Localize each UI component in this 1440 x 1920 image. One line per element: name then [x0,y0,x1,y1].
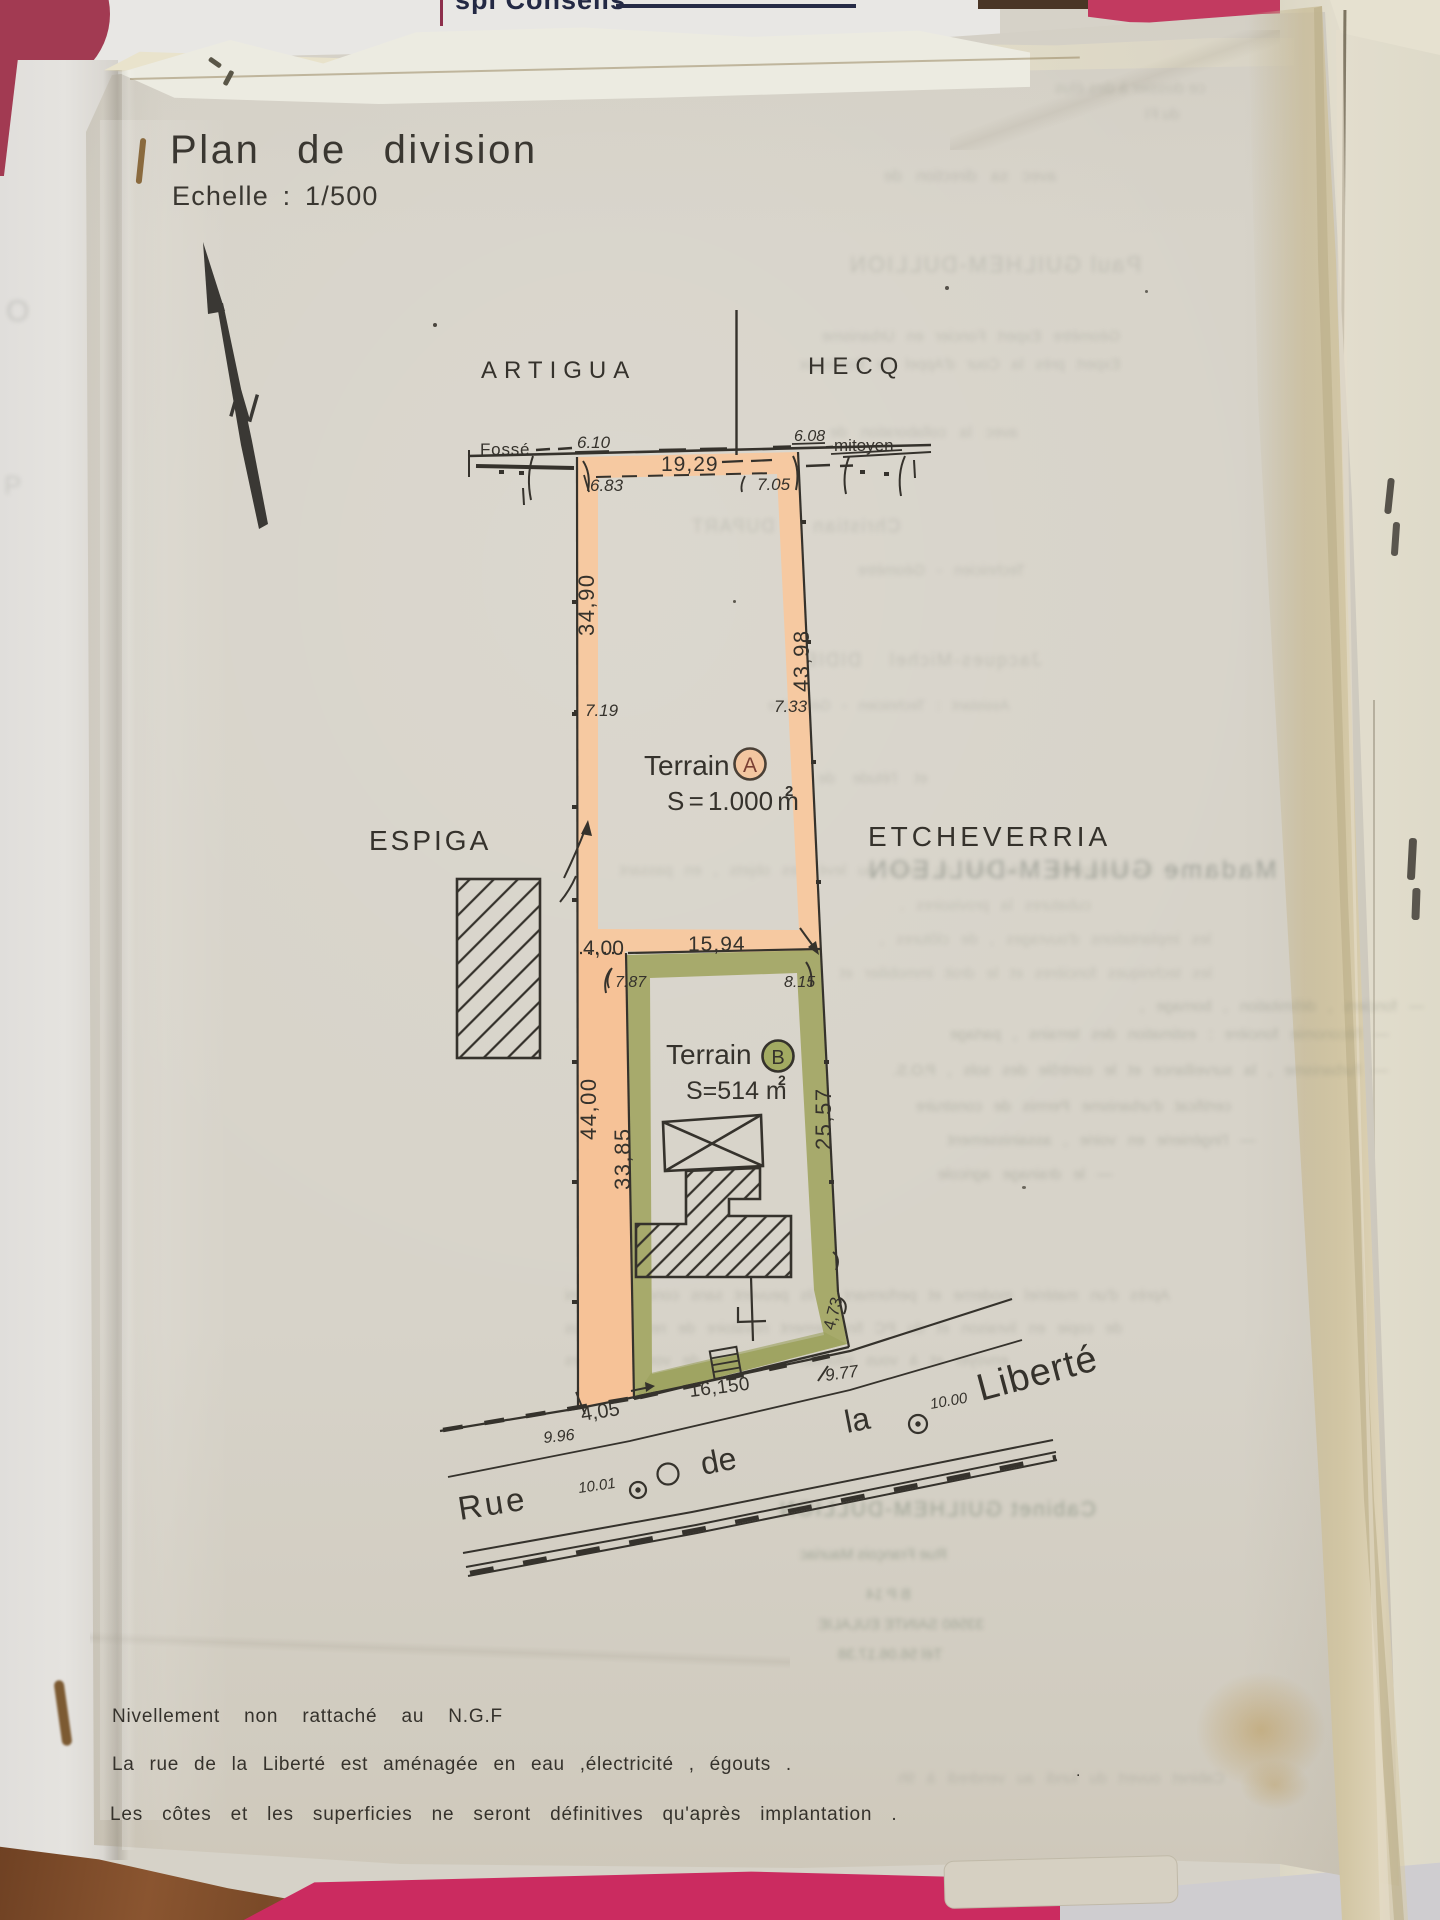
svg-text:B: B [771,1047,784,1069]
svg-text:Echelle : 1/500: Echelle : 1/500 [172,181,379,211]
svg-text:6.10: 6.10 [577,433,611,452]
svg-text:S = 1.000 m: S = 1.000 m [667,786,799,816]
svg-text:10.01: 10.01 [577,1475,617,1497]
svg-text:ARTIGUA: ARTIGUA [481,357,636,384]
svg-text:33,85: 33,85 [610,1127,635,1190]
svg-text:4,00: 4,00 [583,937,624,960]
svg-text:Terrain: Terrain [644,750,730,781]
svg-text:la: la [841,1400,873,1440]
svg-text:25,57: 25,57 [811,1087,836,1150]
svg-text:8.15: 8.15 [784,974,815,991]
svg-text:HECQ: HECQ [808,353,905,380]
svg-text:7.87: 7.87 [615,974,647,991]
svg-text:ESPIGA: ESPIGA [369,825,491,856]
svg-text:7.05: 7.05 [757,475,791,494]
svg-text:ETCHEVERRIA: ETCHEVERRIA [868,821,1111,852]
svg-text:9.77: 9.77 [824,1361,860,1384]
svg-text:Plan de division: Plan de division [170,128,538,172]
svg-text:Fossé: Fossé [480,440,530,459]
svg-text:.: . [1076,1763,1080,1780]
svg-text:Les côtes et les superficies n: Les côtes et les superficies ne seront d… [110,1804,897,1825]
svg-text:7.19: 7.19 [585,701,619,720]
svg-text:6.83: 6.83 [590,476,624,495]
svg-text:Rue: Rue [455,1479,529,1526]
svg-text:43,98: 43,98 [789,629,814,692]
svg-text:15,94: 15,94 [688,933,746,956]
svg-text:19,29: 19,29 [661,453,719,476]
svg-text:4,05: 4,05 [579,1398,621,1426]
svg-text:S=514 m: S=514 m [686,1077,787,1105]
svg-text:Nivellement non rattaché au N.: Nivellement non rattaché au N.G.F [112,1706,503,1727]
svg-text:Terrain: Terrain [666,1039,752,1070]
svg-text:44,00: 44,00 [576,1077,601,1140]
svg-text:34,90: 34,90 [574,573,599,636]
svg-text:A: A [743,754,757,777]
svg-text:7.33: 7.33 [774,697,808,716]
svg-text:9.96: 9.96 [543,1427,576,1447]
svg-text:N: N [224,379,265,431]
svg-text:2: 2 [778,1072,786,1088]
svg-text:La rue de la Liberté est aména: La rue de la Liberté est aménagée en eau… [112,1754,792,1775]
svg-text:10.00: 10.00 [929,1390,970,1413]
svg-text:de: de [697,1440,739,1482]
svg-text:2: 2 [785,783,793,800]
